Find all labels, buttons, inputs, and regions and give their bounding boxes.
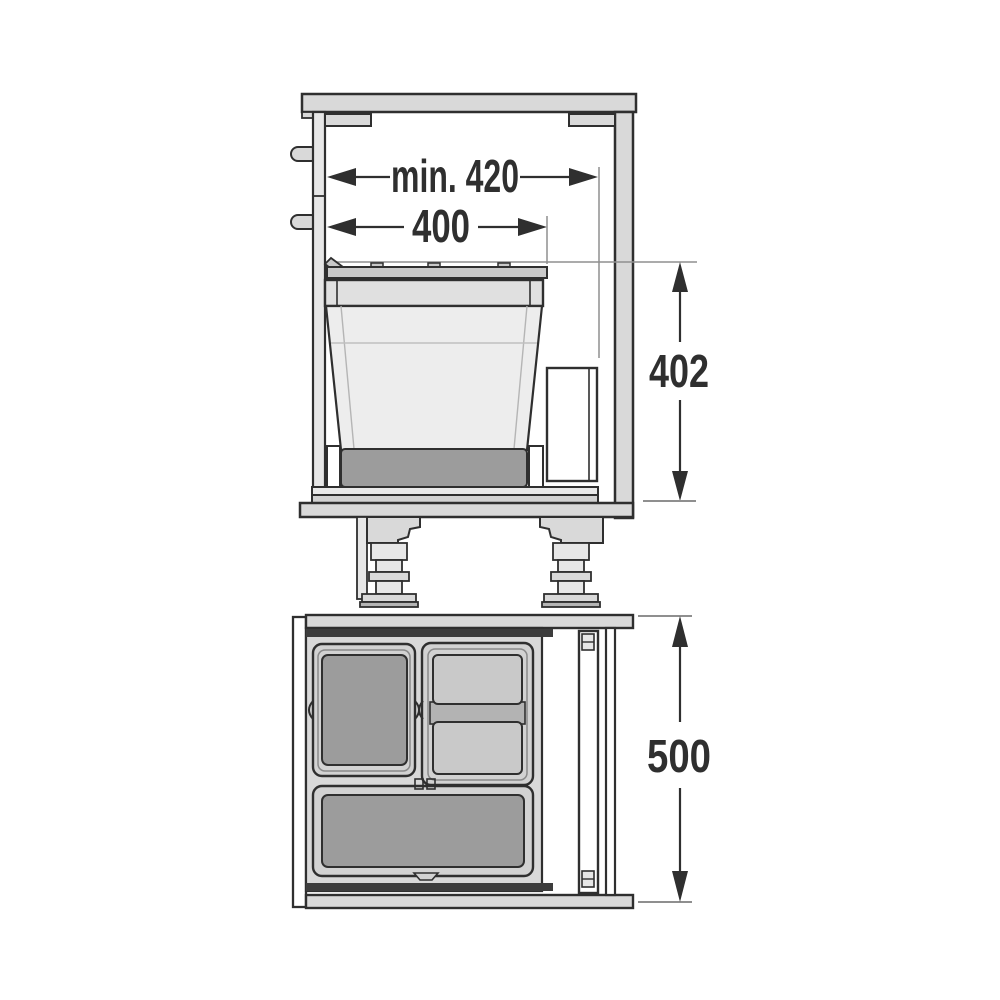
top-fixing-bracket-right <box>569 114 615 126</box>
pullout-base-rail-upper <box>312 487 598 495</box>
bin-compartment-back <box>433 722 522 774</box>
bin-lid-plate <box>327 267 547 278</box>
front-door-panel <box>313 112 325 503</box>
leg-bracket <box>367 517 420 543</box>
bin-rim-frame <box>325 280 543 306</box>
leg-column-segment <box>371 543 407 560</box>
leg-foot-base <box>360 602 418 607</box>
plan-back-panel <box>293 617 306 907</box>
bin-opening <box>322 655 407 765</box>
slide-rail-bottom <box>306 883 553 891</box>
top-fixing-bracket-left <box>325 114 371 126</box>
leg-adjuster-ring <box>551 572 591 581</box>
plinth-fixing-plate <box>357 517 367 599</box>
plan-side-panel-bottom <box>306 895 633 908</box>
cabinet-bottom-panel <box>300 503 633 517</box>
adjustable-leg-left <box>357 517 420 607</box>
technical-drawing: min. 420 400 402 <box>0 0 1000 1000</box>
plan-bin-top-left <box>313 644 415 776</box>
dimension-label-402: 402 <box>649 345 709 397</box>
dimension-label-min-420: min. 420 <box>391 150 519 202</box>
plan-bin-top-right-split <box>422 643 533 785</box>
arrowhead-left <box>327 168 356 186</box>
arrowhead-right <box>518 218 547 236</box>
arrowhead-up <box>672 616 688 647</box>
bin-opening <box>322 795 524 867</box>
arrowhead-left <box>327 218 356 236</box>
leg-adjuster-ring <box>369 572 409 581</box>
leg-bracket <box>540 517 603 543</box>
leg-column-segment <box>553 543 589 560</box>
dimension-bin-height: 402 <box>643 262 709 501</box>
plan-door-panel <box>579 631 598 893</box>
dimension-label-400: 400 <box>412 200 470 252</box>
top-plan-view: 500 <box>293 615 711 908</box>
leg-foot-plate <box>362 594 416 602</box>
leg-column-segment <box>376 581 402 594</box>
slide-rail-top <box>306 629 553 637</box>
dimension-bin-width: 400 <box>327 200 547 264</box>
bin-divider <box>430 702 525 724</box>
side-elevation-view: min. 420 400 402 <box>291 94 709 607</box>
leg-foot-base <box>542 602 600 607</box>
countertop <box>302 94 636 112</box>
waste-bin-body <box>326 306 542 450</box>
frame-upright-right <box>529 446 543 491</box>
leg-foot-plate <box>544 594 598 602</box>
frame-upright-left <box>327 446 340 491</box>
arrowhead-down <box>672 471 688 501</box>
arrowhead-up <box>672 262 688 292</box>
plan-bin-bottom <box>313 786 533 880</box>
leg-column-segment <box>558 560 584 572</box>
adjustable-leg-right <box>540 517 603 607</box>
cabinet-back-panel <box>615 112 633 518</box>
drawing-canvas: min. 420 400 402 <box>0 0 1000 1000</box>
plan-front-edge <box>606 628 615 895</box>
leg-column-segment <box>376 560 402 572</box>
leg-column-segment <box>558 581 584 594</box>
dimension-cabinet-depth: 500 <box>638 616 711 902</box>
plan-side-panel-top <box>306 615 633 628</box>
bin-bottom-section <box>341 449 527 487</box>
dimension-label-500: 500 <box>647 730 711 782</box>
arrowhead-down <box>672 871 688 902</box>
arrowhead-right <box>569 168 598 186</box>
bin-compartment-front <box>433 655 522 704</box>
